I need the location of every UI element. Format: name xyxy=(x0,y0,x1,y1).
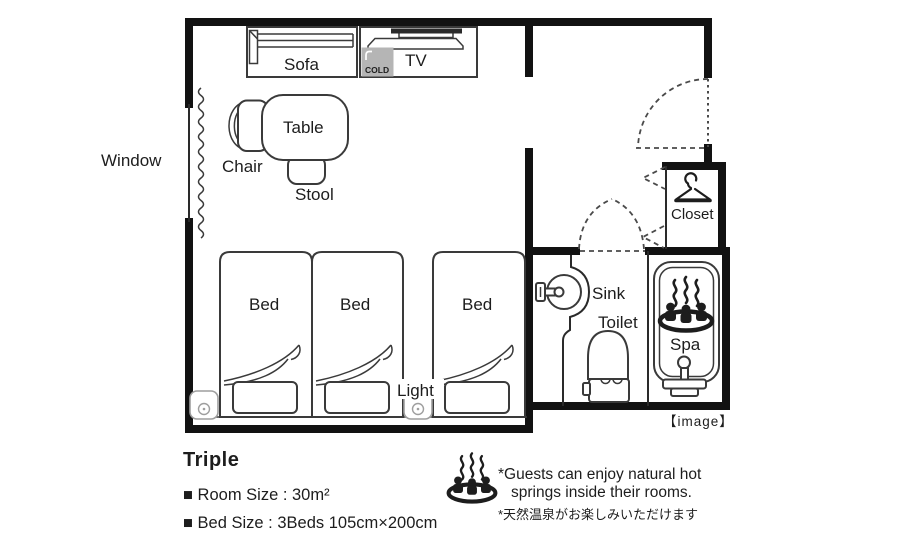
closet: Closet xyxy=(643,166,714,249)
curtain-zigzag-icon xyxy=(199,88,204,238)
spa-label: Spa xyxy=(670,335,701,354)
table-label: Table xyxy=(283,118,324,137)
beds: Bed Bed Bed xyxy=(193,252,527,417)
tv-label: TV xyxy=(405,51,427,70)
sofa: Sofa xyxy=(247,27,357,77)
light-label: Light xyxy=(397,381,434,400)
sink-label: Sink xyxy=(592,284,626,303)
bed-2: Bed xyxy=(312,252,403,417)
pillow xyxy=(233,382,297,413)
bed-3: Bed xyxy=(433,252,525,417)
toilet xyxy=(583,331,629,402)
pillow xyxy=(325,382,389,413)
bathroom-door xyxy=(579,199,645,251)
toilet-label: Toilet xyxy=(598,313,638,332)
bed-label: Bed xyxy=(249,295,279,314)
light-1 xyxy=(190,391,218,419)
table: Table xyxy=(262,95,348,160)
room-info: Triple ■ Room Size : 30m² ■ Bed Size : 3… xyxy=(183,449,437,532)
fridge-label: COLD xyxy=(365,65,389,75)
sofa-label: Sofa xyxy=(284,55,320,74)
window-label: Window xyxy=(101,151,162,170)
floor-plan: Window Closet Sofa xyxy=(0,0,900,540)
fridge: COLD xyxy=(362,48,394,77)
folding-door-arrow-icon xyxy=(643,167,665,189)
drain-icon xyxy=(678,357,690,369)
note-en-line2: springs inside their rooms. xyxy=(511,484,692,501)
bathtub: Spa xyxy=(654,262,719,396)
window: Window xyxy=(101,88,204,238)
entrance-door xyxy=(636,79,708,148)
closet-label: Closet xyxy=(671,206,714,223)
stool-label: Stool xyxy=(295,185,334,204)
chair-label: Chair xyxy=(222,157,263,176)
tv-cabinet: COLD TV xyxy=(360,27,477,77)
hanger-icon xyxy=(676,173,710,200)
pillow xyxy=(445,382,509,413)
note-en-line1: *Guests can enjoy natural hot xyxy=(498,466,702,483)
folding-door-arrow-icon xyxy=(643,226,664,248)
note-ja: *天然温泉がお楽しみいただけます xyxy=(498,507,698,522)
room-type-title: Triple xyxy=(183,449,239,471)
image-caption: 【image】 xyxy=(663,414,734,429)
bed-label: Bed xyxy=(462,295,492,314)
bed-label: Bed xyxy=(340,295,370,314)
bed-1: Bed xyxy=(220,252,312,417)
bed-size-spec: ■ Bed Size : 3Beds 105cm×200cm xyxy=(183,514,437,532)
room-size-spec: ■ Room Size : 30m² xyxy=(183,486,330,504)
hot-spring-note: *Guests can enjoy natural hot springs in… xyxy=(449,453,702,522)
hot-spring-icon xyxy=(449,453,496,501)
